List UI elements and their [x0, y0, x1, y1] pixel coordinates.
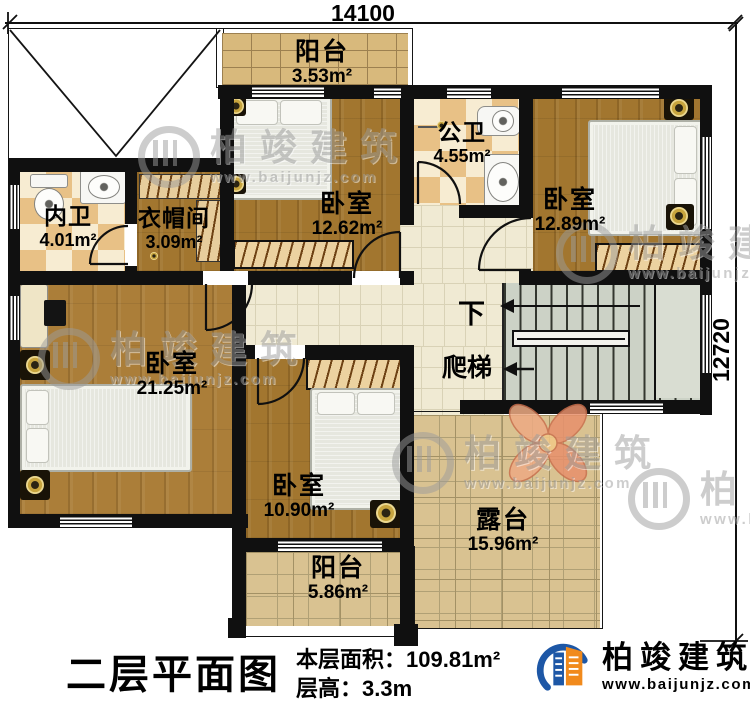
sliding-door	[252, 86, 324, 98]
stair-landing	[656, 285, 700, 398]
watermark: 柏竣建筑www.baijunjz.com	[628, 468, 750, 530]
window	[9, 185, 19, 229]
label-balcony-top: 阳台3.53m²	[292, 38, 352, 87]
page-title: 二层平面图	[64, 642, 289, 704]
lamp	[670, 99, 688, 117]
lamp	[670, 207, 688, 225]
window	[374, 87, 401, 98]
door-opening	[203, 271, 248, 285]
stair-landing-divider	[654, 283, 656, 400]
pillow	[317, 392, 355, 415]
clothes-rack	[139, 174, 221, 199]
wall	[400, 345, 414, 545]
pillow	[674, 126, 697, 174]
window	[590, 402, 663, 413]
watermark-logo-icon	[628, 468, 690, 530]
wall	[220, 99, 234, 285]
sink-basin	[88, 175, 120, 199]
window	[562, 87, 659, 98]
sink-basin	[487, 162, 519, 202]
label-ensuite-bath: 内卫4.01m²	[39, 204, 96, 250]
label-balcony-bottom: 阳台5.86m²	[308, 554, 368, 603]
pillow	[26, 390, 49, 425]
label-bedroom-right: 卧室12.89m²	[535, 186, 606, 235]
label-bedroom-left: 卧室21.25m²	[137, 350, 208, 399]
label-bedroom-bottom: 卧室10.90m²	[264, 472, 335, 521]
wall	[460, 400, 712, 414]
stairs-direction-label: 下	[458, 292, 485, 331]
label-bedroom-middle: 卧室12.62m²	[312, 190, 383, 239]
window	[9, 296, 19, 340]
company-logo-icon	[534, 637, 592, 697]
roof-slope-area	[8, 28, 224, 161]
tv-set	[44, 300, 66, 326]
label-terrace: 露台15.96m²	[468, 506, 539, 555]
lamp	[26, 356, 44, 374]
floor-drain	[150, 252, 158, 260]
window	[701, 137, 711, 229]
window	[447, 87, 491, 98]
dimension-line-right	[735, 23, 737, 641]
pillow	[280, 100, 322, 125]
lamp	[26, 476, 44, 494]
pillow	[26, 428, 49, 463]
stair-left-edge	[502, 283, 504, 400]
floor-stats: 本层面积：109.81m² 层高：3.3m	[296, 645, 500, 704]
lamp	[376, 503, 396, 523]
floor-height-row: 层高：3.3m	[296, 674, 500, 703]
wall	[8, 158, 234, 172]
toilet-bowl	[492, 110, 514, 132]
wardrobe	[306, 358, 404, 390]
company-website: www.baijunjz.com	[602, 676, 750, 693]
stairs-ladder-label: 爬梯	[442, 348, 492, 384]
door-opening	[255, 345, 305, 359]
dimension-depth-label: 12720	[708, 294, 735, 406]
sliding-door	[278, 540, 382, 551]
toilet-tank	[30, 174, 68, 188]
balcony-post-right	[394, 624, 418, 646]
stair-handrail	[512, 330, 630, 347]
balcony-post-left	[228, 618, 246, 638]
window	[60, 516, 132, 527]
label-public-bath: 公卫4.55m²	[433, 120, 490, 166]
wall	[519, 85, 533, 218]
wardrobe	[595, 243, 702, 272]
floor-plan-canvas: 柏竣建筑www.baijunjz.com 柏竣建筑www.baijunjz.co…	[0, 0, 750, 704]
pillow	[357, 392, 395, 415]
wardrobe	[233, 240, 354, 269]
wall	[519, 271, 712, 285]
company-name: 柏竣建筑	[602, 642, 750, 673]
floor-area-row: 本层面积：109.81m²	[296, 645, 500, 674]
dimension-width-label: 14100	[318, 0, 408, 27]
wall	[400, 85, 414, 225]
wall	[232, 283, 246, 545]
wall	[459, 205, 533, 218]
wall	[8, 271, 234, 285]
door-opening	[125, 224, 137, 266]
company-logo: 柏竣建筑 www.baijunjz.com	[534, 637, 750, 697]
label-cloakroom: 衣帽间3.09m²	[138, 206, 210, 252]
door-opening	[352, 271, 400, 285]
wall	[400, 545, 414, 630]
